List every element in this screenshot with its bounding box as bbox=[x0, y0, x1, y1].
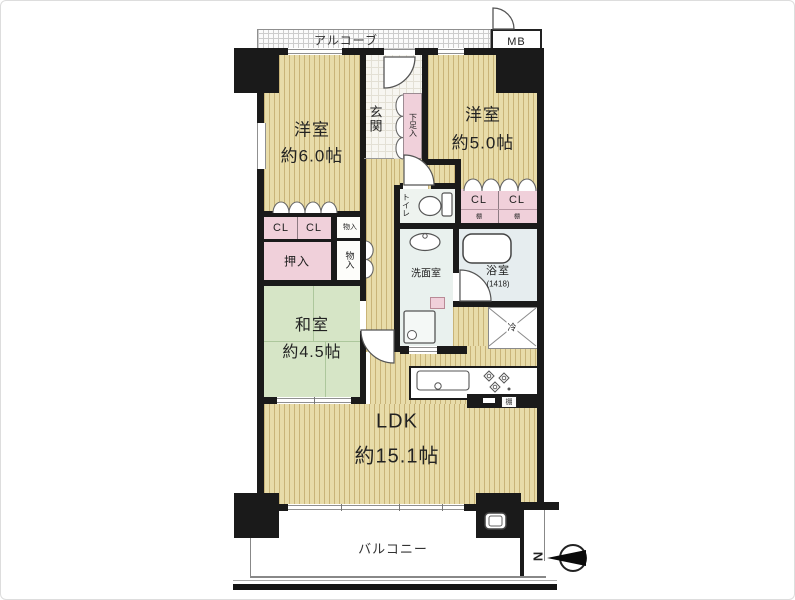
balcony-edge-bottom bbox=[250, 576, 546, 578]
storage-vertical-label: 物入 bbox=[344, 251, 357, 269]
window bbox=[438, 48, 464, 55]
closet-label: CL bbox=[306, 222, 322, 234]
window bbox=[288, 48, 342, 55]
wall bbox=[360, 217, 366, 286]
mb-door-arc bbox=[493, 8, 514, 29]
washroom-label: 洗面室 bbox=[411, 265, 441, 280]
shelf-label: 棚 bbox=[476, 212, 482, 221]
closet-label: CL bbox=[273, 222, 289, 234]
bathroom-label: 浴室 bbox=[486, 262, 510, 278]
wall bbox=[360, 331, 366, 404]
window bbox=[257, 123, 266, 169]
wall bbox=[257, 280, 366, 286]
wall bbox=[400, 346, 409, 354]
wall bbox=[437, 346, 467, 354]
sliding-door bbox=[409, 346, 437, 354]
wall bbox=[422, 55, 428, 165]
entrance-step-line bbox=[364, 158, 394, 159]
compass-circle bbox=[560, 545, 586, 571]
toilet-label: トイレ bbox=[401, 193, 412, 217]
ldk-label: LDK bbox=[376, 411, 418, 434]
window-mullion bbox=[341, 504, 342, 511]
floor-plan: MB bbox=[0, 0, 795, 600]
wall-left bbox=[257, 55, 264, 123]
wall bbox=[394, 185, 400, 352]
storage-top-label: 物入 bbox=[343, 222, 357, 232]
japanese-room-label: 和室 bbox=[295, 311, 329, 335]
wall bbox=[453, 229, 459, 273]
wall bbox=[400, 183, 403, 189]
closet-shelf-line bbox=[461, 209, 537, 210]
closet-divider bbox=[498, 189, 499, 223]
laundry-marker-box bbox=[430, 297, 445, 309]
railing-line-thin bbox=[233, 580, 557, 581]
window-mullion bbox=[399, 504, 400, 511]
wall bbox=[264, 239, 331, 242]
shelf-label: 棚 bbox=[514, 212, 520, 221]
pillar-top-right bbox=[496, 48, 544, 93]
western-room-2-label: 洋室 bbox=[465, 101, 501, 126]
closet-label: CL bbox=[509, 194, 525, 206]
closet-divider bbox=[297, 217, 298, 239]
railing-line-thick bbox=[233, 584, 557, 590]
wall bbox=[453, 301, 541, 307]
wall bbox=[464, 48, 496, 55]
wall bbox=[342, 48, 384, 55]
refrigerator-label: 冷 bbox=[506, 321, 517, 334]
wall bbox=[360, 286, 366, 301]
wall bbox=[415, 48, 438, 55]
sliding-door-mullion bbox=[314, 397, 315, 404]
window-mullion bbox=[442, 504, 443, 511]
alcove-label: アルコーブ bbox=[314, 32, 378, 49]
closet-label: CL bbox=[471, 194, 487, 206]
wall bbox=[422, 159, 455, 165]
wall bbox=[394, 223, 541, 229]
hallway-floor bbox=[366, 159, 394, 352]
oshiire-label: 押入 bbox=[284, 253, 310, 270]
wall bbox=[455, 159, 461, 229]
wall-left bbox=[257, 169, 264, 504]
pillar-bottom-right bbox=[476, 493, 521, 538]
western-room-1-size: 約6.0帖 bbox=[281, 142, 344, 167]
balcony-label: バルコニー bbox=[358, 539, 428, 558]
ldk-size: 約15.1帖 bbox=[355, 440, 440, 469]
meter-box-label: MB bbox=[507, 36, 526, 48]
wall bbox=[257, 211, 366, 217]
compass-arrow bbox=[547, 550, 586, 566]
washroom-floor bbox=[400, 229, 453, 346]
wall bbox=[360, 55, 366, 217]
japanese-room-size: 約4.5帖 bbox=[282, 338, 341, 362]
wall-bottom bbox=[464, 504, 476, 511]
shoe-cabinet-label: 下足入 bbox=[408, 113, 419, 137]
compass-north-label: N bbox=[531, 552, 546, 562]
wall-right bbox=[537, 93, 544, 504]
balcony-window bbox=[288, 504, 464, 511]
wall bbox=[331, 217, 337, 286]
kitchen-shelf-label: 棚 bbox=[506, 397, 513, 407]
kitchen-wall-gap bbox=[483, 398, 495, 403]
western-room-2-size: 約5.0帖 bbox=[452, 129, 515, 154]
bathroom-size: (1418) bbox=[486, 280, 509, 289]
wall bbox=[431, 183, 455, 189]
entrance-label: 玄関 bbox=[366, 105, 385, 133]
wall-bottom bbox=[279, 504, 288, 511]
western-room-1-label: 洋室 bbox=[294, 116, 330, 141]
bath-passage-floor bbox=[453, 307, 488, 346]
